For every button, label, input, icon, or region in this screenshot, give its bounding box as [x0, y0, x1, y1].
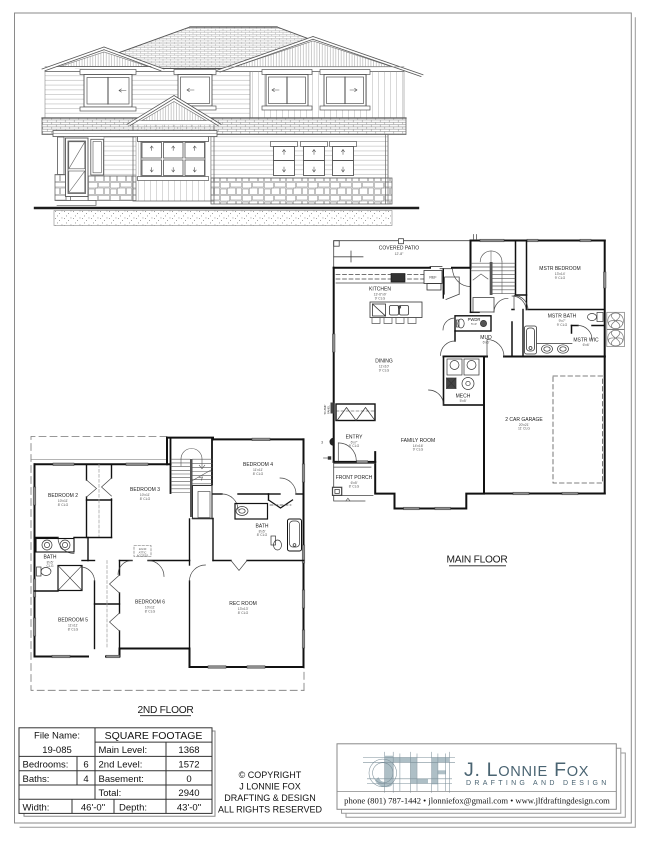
svg-text:Basement:: Basement:: [99, 774, 144, 785]
svg-text:5'x3': 5'x3': [471, 322, 477, 326]
svg-text:2nd Level:: 2nd Level:: [99, 760, 143, 771]
svg-text:8' CLG: 8' CLG: [238, 611, 249, 615]
svg-text:Width:: Width:: [23, 802, 50, 813]
svg-text:Bedrooms:: Bedrooms:: [23, 760, 69, 771]
svg-text:9' CLG: 9' CLG: [413, 448, 424, 452]
svg-text:8' CLG: 8' CLG: [58, 503, 69, 507]
svg-text:DRAFTING AND DESIGN: DRAFTING AND DESIGN: [466, 780, 610, 787]
svg-text:8' CLG: 8' CLG: [145, 609, 156, 613]
svg-text:4: 4: [83, 774, 88, 785]
svg-text:2ND FLOOR: 2ND FLOOR: [137, 705, 193, 716]
svg-text:Baths:: Baths:: [23, 774, 50, 785]
svg-text:9' CLG: 9' CLG: [375, 297, 386, 301]
svg-text:8' CLG: 8' CLG: [257, 533, 268, 537]
svg-text:COVERED PATIO: COVERED PATIO: [379, 246, 419, 252]
svg-text:Main Level:: Main Level:: [99, 745, 148, 756]
svg-text:6'x6': 6'x6': [583, 343, 590, 347]
svg-text:File Name:: File Name:: [34, 731, 80, 742]
svg-text:ACCESS: ACCESS: [137, 554, 149, 558]
svg-text:MAIN FLOOR: MAIN FLOOR: [447, 555, 508, 566]
svg-text:1368: 1368: [178, 745, 199, 756]
svg-text:11' CLG: 11' CLG: [518, 427, 530, 431]
svg-text:J LONNIE FOX: J LONNIE FOX: [239, 782, 301, 792]
svg-text:9' CLG: 9' CLG: [557, 323, 568, 327]
svg-text:8' CLG: 8' CLG: [253, 472, 264, 476]
svg-text:9' CLG: 9' CLG: [349, 444, 360, 448]
svg-text:0: 0: [186, 774, 191, 785]
svg-text:Depth:: Depth:: [119, 802, 147, 813]
svg-text:5'x5': 5'x5': [460, 399, 467, 403]
svg-text:19-085: 19-085: [42, 745, 72, 756]
svg-text:phone (801) 787-1442 • jlonnie: phone (801) 787-1442 • jlonniefox@gmail.…: [344, 796, 610, 806]
svg-text:Total:: Total:: [99, 788, 122, 799]
svg-text:8' CLG: 8' CLG: [349, 485, 360, 489]
svg-text:DRAFTING & DESIGN: DRAFTING & DESIGN: [224, 793, 316, 803]
svg-text:12'-8": 12'-8": [395, 252, 404, 256]
svg-text:© COPYRIGHT: © COPYRIGHT: [239, 770, 302, 780]
svg-text:1572: 1572: [178, 760, 199, 771]
svg-text:8' CLG: 8' CLG: [140, 497, 151, 501]
svg-text:REF: REF: [429, 276, 437, 280]
svg-text:2940: 2940: [178, 788, 199, 799]
svg-text:6: 6: [83, 760, 88, 771]
svg-text:SQUARE FOOTAGE: SQUARE FOOTAGE: [105, 730, 203, 742]
svg-text:9' CLG: 9' CLG: [555, 276, 566, 280]
svg-text:CLG: CLG: [47, 564, 54, 568]
svg-text:9' CLG: 9' CLG: [379, 368, 390, 372]
svg-text:6'x6': 6'x6': [483, 341, 490, 345]
svg-text:46'-0": 46'-0": [81, 802, 105, 813]
svg-text:43'-0": 43'-0": [177, 802, 201, 813]
svg-text:ALL RIGHTS RESERVED: ALL RIGHTS RESERVED: [218, 805, 323, 815]
svg-text:PANEL: PANEL: [327, 405, 331, 414]
svg-text:8' CLG: 8' CLG: [68, 627, 79, 631]
